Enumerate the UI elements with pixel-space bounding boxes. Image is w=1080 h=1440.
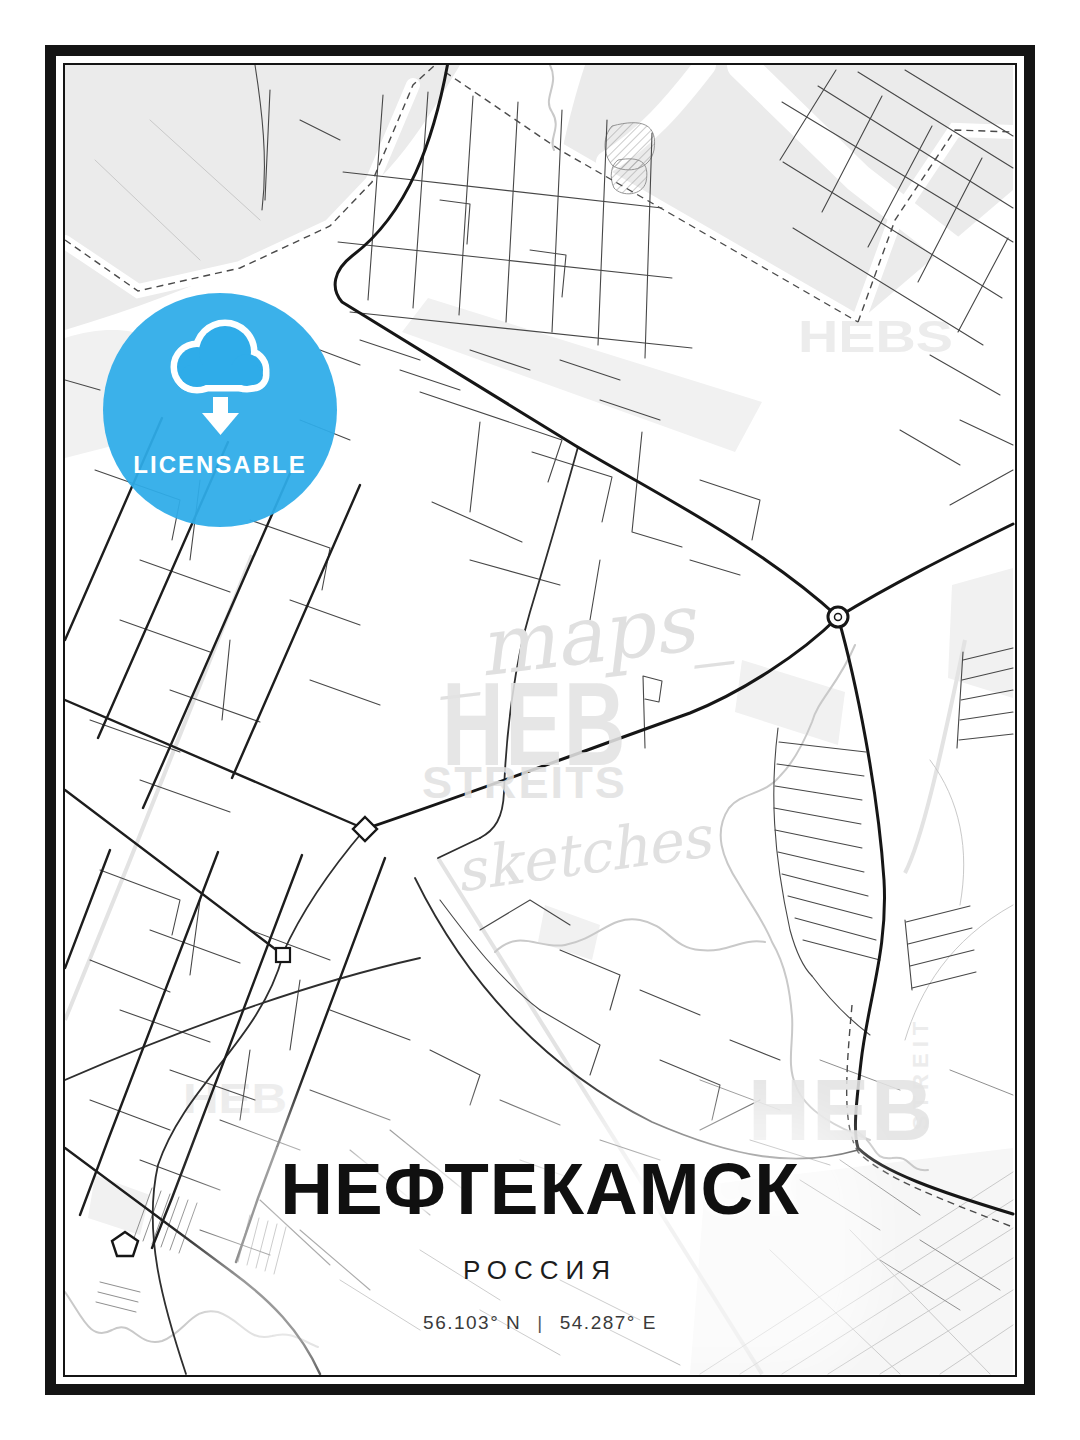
- watermark-streits: STREITS: [422, 758, 627, 807]
- download-arrow-icon: [202, 397, 239, 435]
- central-watermarks: _maps_ HEB STREITS sketches HEB: [422, 571, 935, 1159]
- latitude: 56.103° N: [423, 1312, 521, 1333]
- watermark-bottom-left: HEB: [183, 1075, 287, 1122]
- title-block: НЕФТЕКАМСК РОССИЯ 56.103° N|54.287° E: [0, 1152, 1080, 1334]
- page-title: НЕФТЕКАМСК: [0, 1152, 1080, 1225]
- country-subtitle: РОССИЯ: [0, 1255, 1080, 1286]
- watermark-top-right: HEBS: [798, 311, 953, 362]
- licensable-badge: LICENSABLE: [103, 293, 337, 527]
- map-poster: HEBS HEB STREIT: [0, 0, 1080, 1440]
- coordinates: 56.103° N|54.287° E: [0, 1312, 1080, 1334]
- cloud-download-icon: [144, 305, 296, 455]
- badge-label: LICENSABLE: [103, 451, 337, 479]
- longitude: 54.287° E: [560, 1312, 657, 1333]
- watermark-script-sketches: sketches: [451, 802, 718, 905]
- coords-separator: |: [537, 1312, 543, 1333]
